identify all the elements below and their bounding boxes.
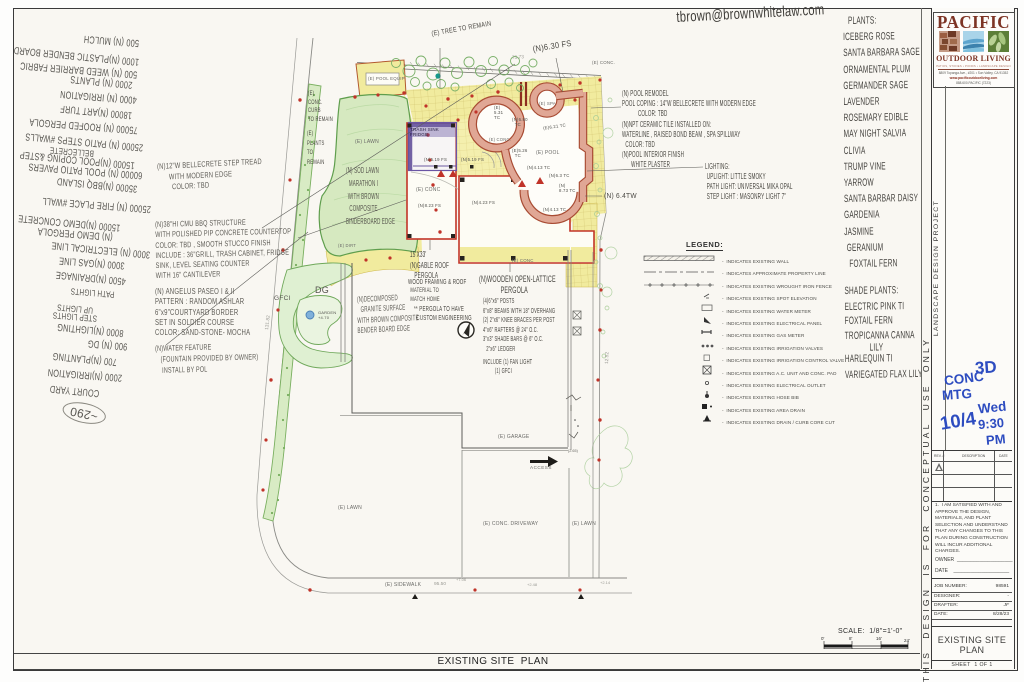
svg-text:(2.65): (2.65) (568, 449, 579, 453)
svg-text:131.82: 131.82 (264, 315, 272, 331)
svg-text:12.52: 12.52 (604, 352, 610, 365)
svg-text:73.73: 73.73 (512, 54, 525, 61)
svg-text:95.50: 95.50 (434, 581, 446, 587)
svg-text:+2.14: +2.14 (600, 580, 611, 585)
svg-text:+2.48: +2.48 (527, 582, 538, 587)
svg-text:+7.06: +7.06 (456, 577, 467, 582)
